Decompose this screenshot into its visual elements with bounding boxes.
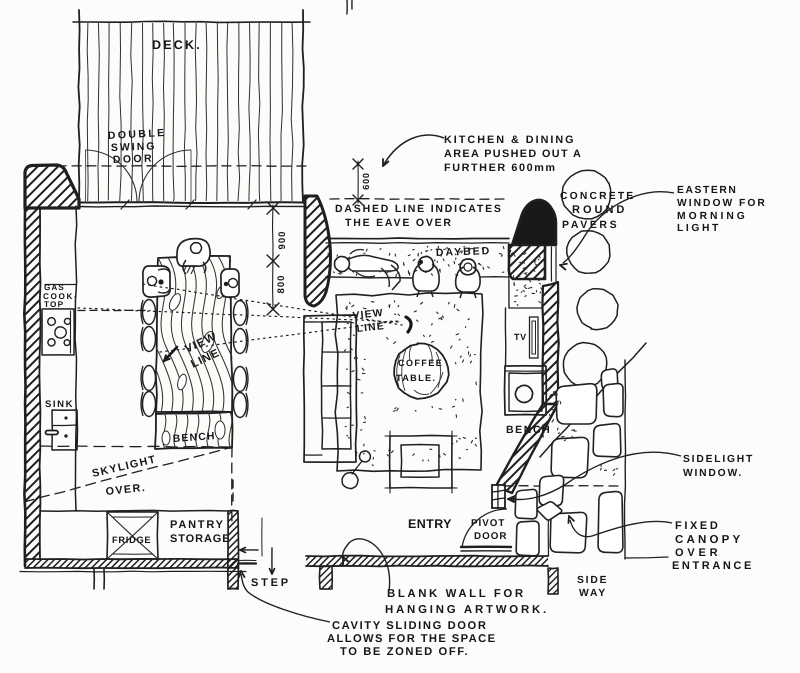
svg-text:CANOPY: CANOPY xyxy=(675,534,743,546)
svg-text:TOP: TOP xyxy=(44,300,64,309)
svg-text:DASHED LINE INDICATES: DASHED LINE INDICATES xyxy=(335,203,503,215)
svg-text:STEP: STEP xyxy=(251,577,291,589)
svg-text:FIXED: FIXED xyxy=(675,520,720,532)
svg-text:SINK: SINK xyxy=(45,399,74,410)
svg-text:DOOR: DOOR xyxy=(113,153,155,166)
svg-text:FRIDGE: FRIDGE xyxy=(112,535,151,545)
svg-text:EASTERN: EASTERN xyxy=(677,185,737,196)
svg-text:TV: TV xyxy=(514,332,527,342)
svg-text:STORAGE: STORAGE xyxy=(170,533,231,545)
svg-text:WAY: WAY xyxy=(579,588,607,599)
svg-text:CAVITY SLIDING DOOR: CAVITY SLIDING DOOR xyxy=(332,620,488,632)
svg-text:600: 600 xyxy=(361,172,371,189)
svg-text:ENTRY: ENTRY xyxy=(408,517,452,531)
svg-text:SIDELIGHT: SIDELIGHT xyxy=(683,454,754,465)
svg-text:900: 900 xyxy=(277,231,288,250)
svg-text:ROUND: ROUND xyxy=(572,204,627,216)
svg-text:LIGHT: LIGHT xyxy=(677,223,721,234)
svg-text:TO BE ZONED OFF.: TO BE ZONED OFF. xyxy=(340,646,469,658)
svg-text:THE EAVE OVER: THE EAVE OVER xyxy=(345,217,453,229)
svg-text:OVER: OVER xyxy=(675,547,721,559)
svg-text:BLANK WALL FOR: BLANK WALL FOR xyxy=(387,588,526,600)
svg-text:TABLE.: TABLE. xyxy=(396,373,436,383)
svg-text:FURTHER 600mm: FURTHER 600mm xyxy=(444,162,557,174)
svg-text:COFFEE: COFFEE xyxy=(398,358,443,368)
svg-text:ALLOWS FOR THE SPACE: ALLOWS FOR THE SPACE xyxy=(327,633,497,645)
svg-text:DECK.: DECK. xyxy=(152,38,202,52)
svg-text:ENTRANCE: ENTRANCE xyxy=(672,560,754,572)
svg-text:DOOR: DOOR xyxy=(474,531,507,542)
svg-text:SIDE: SIDE xyxy=(577,575,608,586)
svg-text:PAVERS: PAVERS xyxy=(562,219,619,231)
svg-text:DAYBED: DAYBED xyxy=(436,245,492,259)
svg-text:MORNING: MORNING xyxy=(677,211,748,222)
svg-text:WINDOW.: WINDOW. xyxy=(683,468,743,479)
svg-text:BENCH: BENCH xyxy=(506,424,551,436)
svg-text:PANTRY: PANTRY xyxy=(170,519,225,531)
svg-text:HANGING ARTWORK.: HANGING ARTWORK. xyxy=(385,604,549,616)
svg-text:WINDOW FOR: WINDOW FOR xyxy=(677,198,767,209)
svg-text:PIVOT: PIVOT xyxy=(471,518,505,529)
svg-text:GAS: GAS xyxy=(44,283,65,292)
svg-text:AREA PUSHED OUT A: AREA PUSHED OUT A xyxy=(444,148,582,160)
svg-text:KITCHEN & DINING: KITCHEN & DINING xyxy=(444,134,576,146)
svg-text:800: 800 xyxy=(276,275,287,294)
